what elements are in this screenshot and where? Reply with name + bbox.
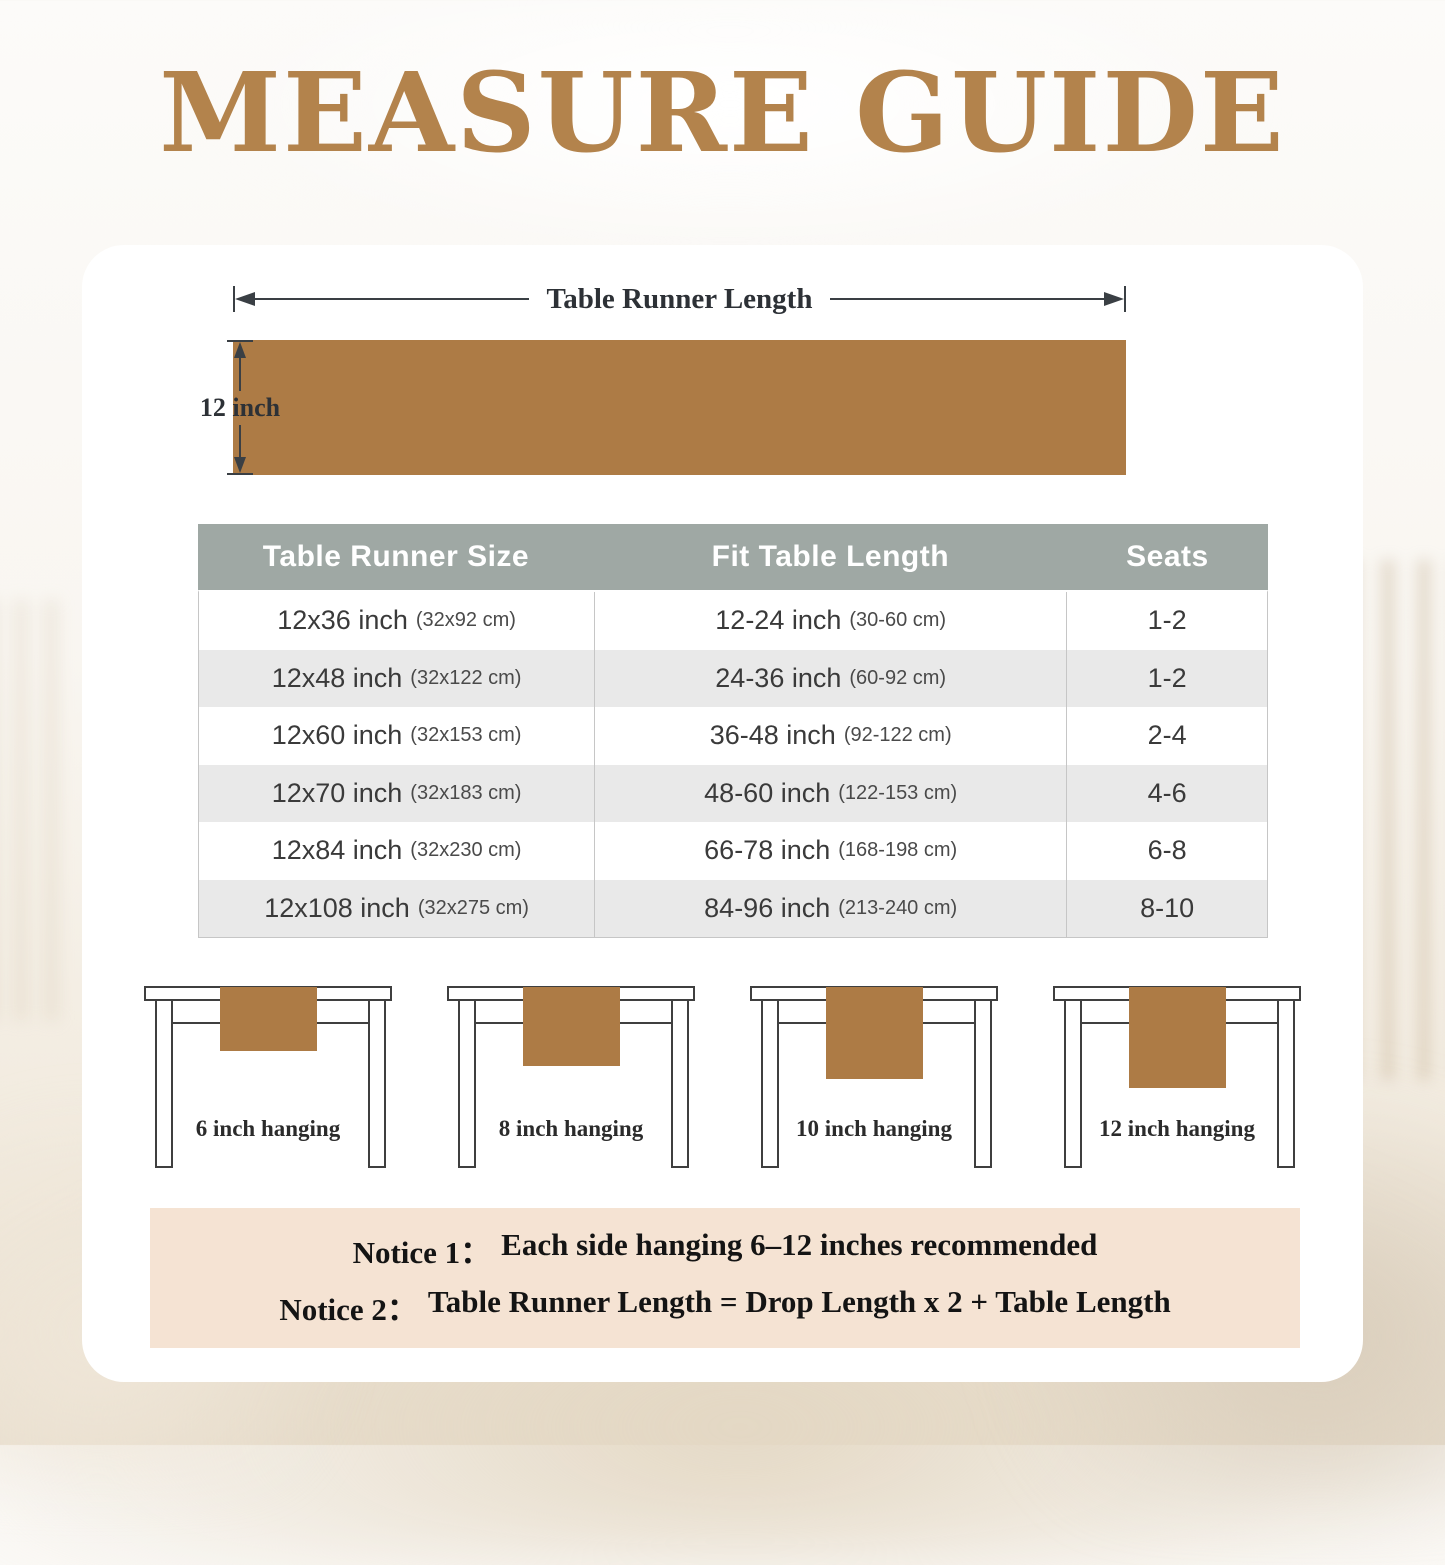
table-row: 12x36 inch(32x92 cm) 12-24 inch(30-60 cm… [199,592,1267,650]
column-header-fit-length: Fit Table Length [594,524,1067,590]
seats-cell: 8-10 [1066,880,1267,938]
dimension-line [239,358,241,391]
size-table: Table Runner Size Fit Table Length Seats… [198,524,1268,938]
width-dimension-label: 12 inch [200,391,280,425]
runner-size-cell: 12x36 inch(32x92 cm) [199,592,594,650]
notice-1-label: Notice 1： [353,1227,492,1272]
notice-line-1: Notice 1： Each side hanging 6–12 inches … [353,1227,1098,1272]
table-runner-swatch [233,340,1126,475]
hanging-label: 10 inch hanging [748,1116,1000,1142]
table-row: 12x84 inch(32x230 cm) 66-78 inch(168-198… [199,822,1267,880]
length-dimension: Table Runner Length [233,283,1126,315]
width-dimension: 12 inch [188,340,292,475]
dimension-tick [1124,286,1126,312]
runner-size-cell: 12x60 inch(32x153 cm) [199,707,594,765]
table-figure-10-inch: 10 inch hanging [748,983,1000,1181]
fit-length-cell: 66-78 inch(168-198 cm) [594,822,1066,880]
page-title: MEASURE GUIDE [0,52,1445,173]
hanging-label: 6 inch hanging [142,1116,394,1142]
notice-2-label: Notice 2： [279,1284,418,1329]
table-row: 12x70 inch(32x183 cm) 48-60 inch(122-153… [199,765,1267,823]
seats-cell: 2-4 [1066,707,1267,765]
fit-length-cell: 48-60 inch(122-153 cm) [594,765,1066,823]
length-dimension-label: Table Runner Length [529,283,831,316]
runner-size-cell: 12x48 inch(32x122 cm) [199,650,594,708]
table-drawing [445,983,697,1179]
notice-box: Notice 1： Each side hanging 6–12 inches … [150,1208,1300,1348]
background-photo-blur [0,600,75,1020]
seats-cell: 1-2 [1066,592,1267,650]
table-figure-12-inch: 12 inch hanging [1051,983,1303,1181]
hanging-label: 8 inch hanging [445,1116,697,1142]
runner-size-cell: 12x84 inch(32x230 cm) [199,822,594,880]
fit-length-cell: 24-36 inch(60-92 cm) [594,650,1066,708]
seats-cell: 4-6 [1066,765,1267,823]
runner-size-cell: 12x70 inch(32x183 cm) [199,765,594,823]
seats-cell: 6-8 [1066,822,1267,880]
arrow-right-icon [1104,292,1124,306]
table-figure-8-inch: 8 inch hanging [445,983,697,1181]
table-drawing [142,983,394,1179]
notice-1-text: Each side hanging 6–12 inches recommende… [501,1227,1097,1272]
table-drawing [1051,983,1303,1179]
notice-2-text: Table Runner Length = Drop Length x 2 + … [428,1284,1171,1329]
column-header-seats: Seats [1067,524,1268,590]
table-row: 12x60 inch(32x153 cm) 36-48 inch(92-122 … [199,707,1267,765]
dimension-line [239,425,241,458]
seats-cell: 1-2 [1066,650,1267,708]
table-figure-6-inch: 6 inch hanging [142,983,394,1181]
arrow-down-icon [234,457,246,473]
fit-length-cell: 12-24 inch(30-60 cm) [594,592,1066,650]
fit-length-cell: 36-48 inch(92-122 cm) [594,707,1066,765]
column-header-runner-size: Table Runner Size [198,524,594,590]
fit-length-cell: 84-96 inch(213-240 cm) [594,880,1066,938]
runner-size-cell: 12x108 inch(32x275 cm) [199,880,594,938]
table-row: 12x48 inch(32x122 cm) 24-36 inch(60-92 c… [199,650,1267,708]
dimension-tick [227,473,253,475]
dimension-line [830,298,1104,300]
table-row: 12x108 inch(32x275 cm) 84-96 inch(213-24… [199,880,1267,938]
notice-line-2: Notice 2： Table Runner Length = Drop Len… [279,1284,1170,1329]
size-table-header: Table Runner Size Fit Table Length Seats [198,524,1268,590]
hanging-label: 12 inch hanging [1051,1116,1303,1142]
size-table-body: 12x36 inch(32x92 cm) 12-24 inch(30-60 cm… [198,590,1268,938]
dimension-line [255,298,529,300]
arrow-left-icon [235,292,255,306]
hanging-examples: 6 inch hanging 8 inch hanging 10 inch ha… [142,983,1303,1181]
measure-guide-card: Table Runner Length 12 inch Table Runner… [82,245,1363,1382]
table-drawing [748,983,1000,1179]
arrow-up-icon [234,342,246,358]
